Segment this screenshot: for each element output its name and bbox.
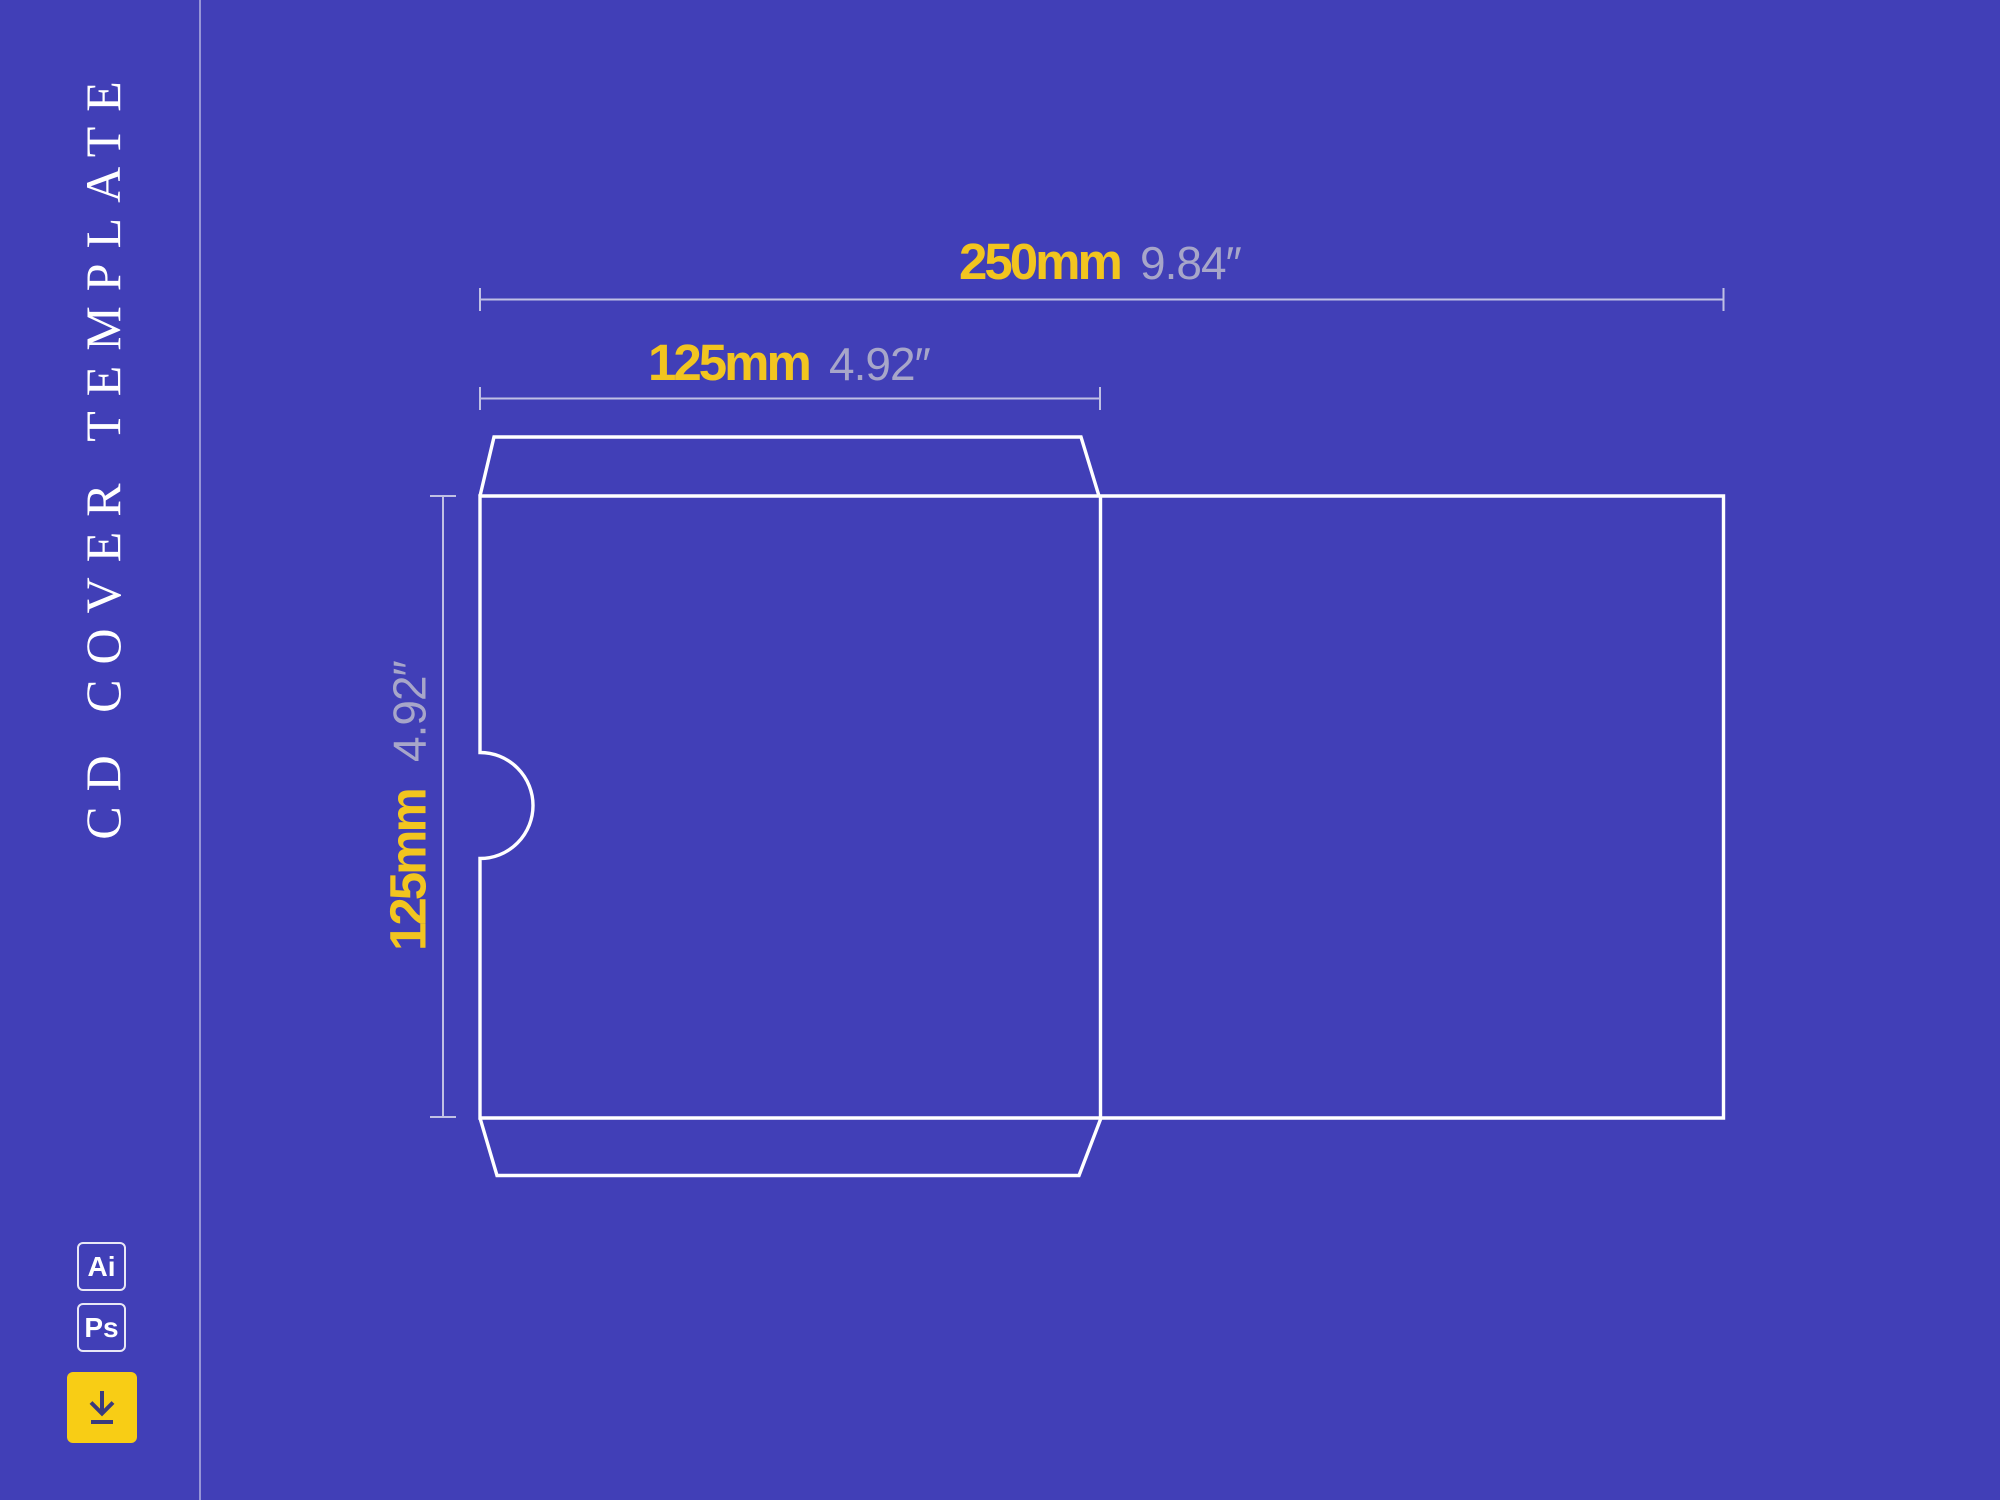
svg-text:4.92″: 4.92″ xyxy=(829,338,931,390)
svg-text:9.84″: 9.84″ xyxy=(1140,237,1242,289)
svg-text:125mm: 125mm xyxy=(380,790,437,951)
svg-text:4.92″: 4.92″ xyxy=(384,660,436,762)
svg-text:250mm: 250mm xyxy=(959,233,1120,290)
svg-text:125mm: 125mm xyxy=(648,334,809,391)
